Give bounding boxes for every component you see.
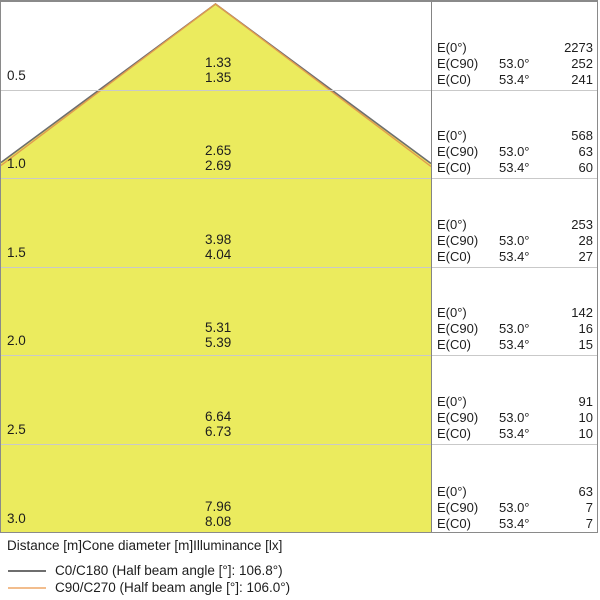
ec0-label: E(C0) [437,516,499,532]
e0-label: E(0°) [437,305,499,321]
ec0-angle: 53.4° [499,337,551,353]
ec90-angle: 53.0° [499,500,551,516]
legend: C0/C180 (Half beam angle [°]: 106.8°) C9… [8,562,290,596]
ec90-value: 28 [551,233,593,249]
cone-diameter-values: 3.98 4.04 [205,232,231,262]
diameter-c0: 2.69 [205,158,231,173]
ec0-label: E(C0) [437,160,499,176]
illuminance-table-row: E(0°)142 E(C90)53.0°16 E(C0)53.4°15 [437,305,593,353]
cone-diameter-values: 7.96 8.08 [205,499,231,529]
e0-value: 568 [551,128,593,144]
ec0-label: E(C0) [437,337,499,353]
ec90-value: 252 [551,56,593,72]
illuminance-table-row: E(0°)253 E(C90)53.0°28 E(C0)53.4°27 [437,217,593,265]
ec0-angle: 53.4° [499,249,551,265]
ec0-value: 7 [551,516,593,532]
ec0-label: E(C0) [437,72,499,88]
axis-caption: Distance [m]Cone diameter [m]Illuminance… [7,538,282,553]
cone-diameter-values: 5.31 5.39 [205,320,231,350]
ec90-angle: 53.0° [499,233,551,249]
diameter-c0: 6.73 [205,424,231,439]
distance-label: 0.5 [7,68,26,83]
legend-label: C90/C270 (Half beam angle [°]: 106.0°) [55,580,290,595]
e0-label: E(0°) [437,128,499,144]
ec0-value: 10 [551,426,593,442]
e0-label: E(0°) [437,484,499,500]
distance-label: 1.5 [7,245,26,260]
distance-label: 1.0 [7,156,26,171]
diameter-c0: 1.35 [205,70,231,85]
ec0-label: E(C0) [437,426,499,442]
ec0-angle: 53.4° [499,72,551,88]
ec0-value: 241 [551,72,593,88]
distance-label: 3.0 [7,511,26,526]
gridline-2.0m [1,355,597,356]
light-cone-diagram: 0.5 1.0 1.5 2.0 2.5 3.0 1.33 1.35 2.65 2… [0,0,598,533]
ec0-angle: 53.4° [499,160,551,176]
ec90-label: E(C90) [437,233,499,249]
ec0-angle: 53.4° [499,516,551,532]
ec90-label: E(C90) [437,56,499,72]
gridline-2.5m [1,444,597,445]
ec90-angle: 53.0° [499,410,551,426]
ec90-value: 16 [551,321,593,337]
e0-label: E(0°) [437,40,499,56]
gridline-1.5m [1,267,597,268]
cone-diameter-values: 2.65 2.69 [205,143,231,173]
e0-value: 91 [551,394,593,410]
diameter-c90: 3.98 [205,232,231,247]
cone-diameter-values: 6.64 6.73 [205,409,231,439]
table-divider [431,2,432,532]
distance-label: 2.5 [7,422,26,437]
c0-c180-line-swatch [8,570,46,572]
illuminance-table-row: E(0°)63 E(C90)53.0°7 E(C0)53.4°7 [437,484,593,532]
distance-label: 2.0 [7,333,26,348]
ec90-value: 10 [551,410,593,426]
ec0-value: 15 [551,337,593,353]
diameter-c90: 7.96 [205,499,231,514]
diameter-c0: 5.39 [205,335,231,350]
ec0-value: 60 [551,160,593,176]
diameter-c90: 1.33 [205,55,231,70]
diameter-c90: 6.64 [205,409,231,424]
illuminance-table-row: E(0°)91 E(C90)53.0°10 E(C0)53.4°10 [437,394,593,442]
diameter-c90: 5.31 [205,320,231,335]
ec90-label: E(C90) [437,144,499,160]
ec90-value: 63 [551,144,593,160]
diameter-c0: 4.04 [205,247,231,262]
gridline-0.5m [1,90,597,91]
ec90-value: 7 [551,500,593,516]
legend-item-c0-c180: C0/C180 (Half beam angle [°]: 106.8°) [8,562,290,579]
e0-value: 142 [551,305,593,321]
e0-value: 253 [551,217,593,233]
ec90-angle: 53.0° [499,144,551,160]
e0-value: 2273 [551,40,593,56]
ec90-label: E(C90) [437,321,499,337]
ec0-value: 27 [551,249,593,265]
ec90-angle: 53.0° [499,321,551,337]
e0-value: 63 [551,484,593,500]
legend-item-c90-c270: C90/C270 (Half beam angle [°]: 106.0°) [8,579,290,596]
cone-diameter-values: 1.33 1.35 [205,55,231,85]
ec90-angle: 53.0° [499,56,551,72]
illuminance-table-row: E(0°)568 E(C90)53.0°63 E(C0)53.4°60 [437,128,593,176]
diameter-c0: 8.08 [205,514,231,529]
ec90-label: E(C90) [437,500,499,516]
illuminance-table-row: E(0°)2273 E(C90)53.0°252 E(C0)53.4°241 [437,40,593,88]
ec0-label: E(C0) [437,249,499,265]
e0-label: E(0°) [437,217,499,233]
legend-label: C0/C180 (Half beam angle [°]: 106.8°) [55,563,283,578]
c90-c270-line-swatch [8,587,46,589]
ec90-label: E(C90) [437,410,499,426]
gridline-1.0m [1,178,597,179]
ec0-angle: 53.4° [499,426,551,442]
diameter-c90: 2.65 [205,143,231,158]
e0-label: E(0°) [437,394,499,410]
